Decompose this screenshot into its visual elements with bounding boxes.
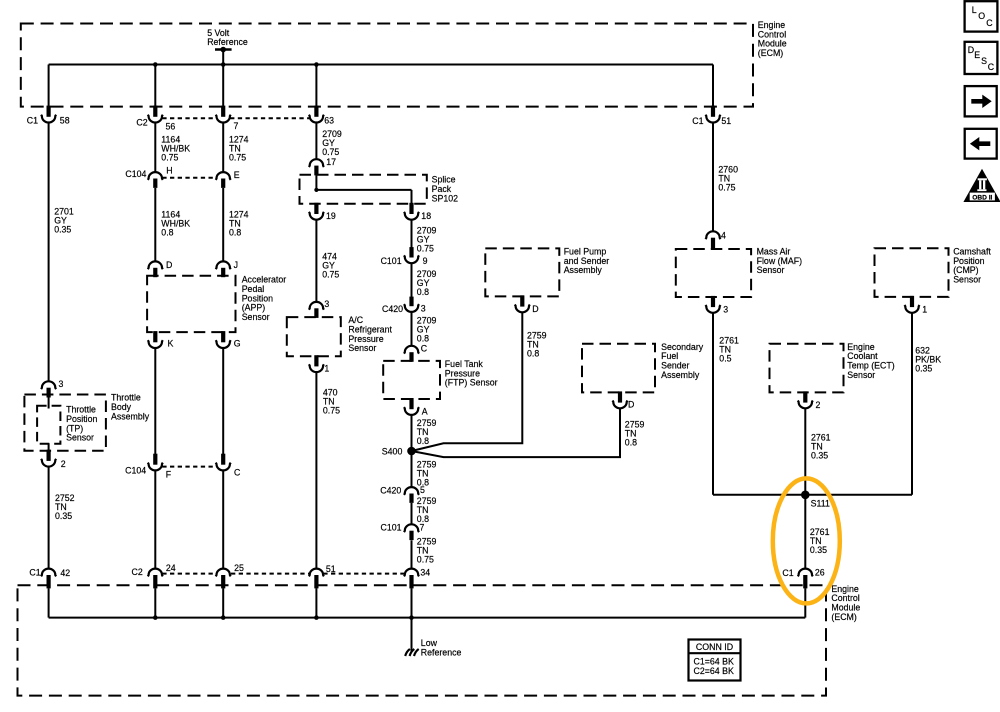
- svg-text:0.8: 0.8: [229, 228, 241, 238]
- svg-text:C1: C1: [27, 116, 38, 126]
- svg-text:0.75: 0.75: [417, 243, 434, 253]
- svg-text:CONN ID: CONN ID: [696, 642, 733, 652]
- svg-text:1: 1: [324, 363, 329, 373]
- svg-text:51: 51: [721, 116, 731, 126]
- svg-text:S: S: [981, 56, 987, 66]
- svg-text:24: 24: [166, 563, 176, 573]
- svg-text:63: 63: [324, 116, 334, 126]
- svg-text:C: C: [234, 468, 241, 478]
- svg-text:0.8: 0.8: [625, 437, 637, 447]
- svg-text:2: 2: [816, 400, 821, 410]
- svg-text:C2: C2: [132, 567, 143, 577]
- svg-text:D: D: [968, 45, 974, 55]
- svg-text:C101: C101: [380, 522, 401, 532]
- svg-text:OBD II: OBD II: [972, 195, 992, 202]
- svg-text:Sensor: Sensor: [348, 343, 376, 353]
- svg-text:Sensor: Sensor: [847, 370, 875, 380]
- svg-text:3: 3: [59, 379, 64, 389]
- svg-text:SP102: SP102: [432, 193, 459, 203]
- svg-text:0.75: 0.75: [322, 269, 339, 279]
- svg-text:1: 1: [922, 305, 927, 315]
- svg-text:Sensor: Sensor: [757, 265, 785, 275]
- svg-text:3: 3: [723, 305, 728, 315]
- svg-text:9: 9: [423, 256, 428, 266]
- svg-text:56: 56: [166, 121, 176, 131]
- svg-text:(ECM): (ECM): [831, 612, 856, 622]
- svg-text:Reference: Reference: [207, 37, 248, 47]
- svg-text:C1: C1: [692, 116, 703, 126]
- svg-text:7: 7: [234, 121, 239, 131]
- svg-text:C104: C104: [125, 466, 146, 476]
- svg-text:C420: C420: [380, 485, 401, 495]
- svg-text:D: D: [532, 304, 538, 314]
- svg-text:L: L: [972, 5, 977, 15]
- svg-text:3: 3: [421, 304, 426, 314]
- svg-text:C: C: [986, 18, 993, 28]
- svg-text:0.8: 0.8: [417, 333, 429, 343]
- svg-text:C1: C1: [29, 567, 40, 577]
- svg-text:17: 17: [326, 157, 336, 167]
- svg-text:C2=64 BK: C2=64 BK: [694, 666, 734, 676]
- svg-text:0.75: 0.75: [417, 555, 434, 565]
- svg-text:Assembly: Assembly: [111, 411, 150, 421]
- svg-text:42: 42: [60, 568, 70, 578]
- svg-text:0.35: 0.35: [55, 511, 72, 521]
- svg-text:18: 18: [421, 211, 431, 221]
- svg-text:0.5: 0.5: [719, 354, 731, 364]
- svg-text:C101: C101: [381, 256, 402, 266]
- svg-text:0.35: 0.35: [810, 545, 827, 555]
- svg-text:C: C: [988, 62, 995, 72]
- svg-text:Sensor: Sensor: [242, 312, 270, 322]
- svg-text:0.75: 0.75: [229, 153, 246, 163]
- svg-text:0.8: 0.8: [417, 287, 429, 297]
- svg-text:0.35: 0.35: [54, 225, 71, 235]
- svg-text:D: D: [628, 400, 634, 410]
- svg-text:A: A: [422, 407, 428, 417]
- svg-text:0.75: 0.75: [718, 182, 735, 192]
- svg-text:(FTP) Sensor: (FTP) Sensor: [445, 378, 498, 388]
- svg-text:7: 7: [420, 522, 425, 532]
- svg-text:C2: C2: [136, 117, 147, 127]
- svg-text:25: 25: [234, 563, 244, 573]
- svg-text:0.8: 0.8: [417, 436, 429, 446]
- svg-text:Reference: Reference: [421, 648, 462, 658]
- svg-text:0.8: 0.8: [527, 349, 539, 359]
- svg-text:K: K: [168, 338, 174, 348]
- svg-text:S111: S111: [811, 498, 830, 508]
- svg-text:34: 34: [420, 568, 430, 578]
- svg-text:0.75: 0.75: [161, 153, 178, 163]
- svg-text:19: 19: [326, 211, 336, 221]
- svg-text:Assembly: Assembly: [661, 370, 700, 380]
- svg-text:58: 58: [60, 116, 70, 126]
- svg-text:0.8: 0.8: [161, 228, 173, 238]
- svg-text:D: D: [166, 260, 172, 270]
- svg-text:0.35: 0.35: [811, 450, 828, 460]
- svg-text:F: F: [166, 470, 172, 480]
- svg-text:O: O: [978, 11, 985, 21]
- svg-text:H: H: [166, 165, 172, 175]
- svg-text:(ECM): (ECM): [758, 48, 783, 58]
- svg-text:2: 2: [61, 459, 66, 469]
- svg-text:J: J: [234, 260, 238, 270]
- svg-text:Sensor: Sensor: [953, 274, 981, 284]
- svg-text:C104: C104: [125, 169, 146, 179]
- svg-text:4: 4: [721, 231, 726, 241]
- svg-text:0.35: 0.35: [915, 363, 932, 373]
- svg-text:E: E: [974, 50, 980, 60]
- svg-text:0.75: 0.75: [323, 406, 340, 416]
- svg-text:3: 3: [324, 299, 329, 309]
- svg-text:Assembly: Assembly: [564, 265, 603, 275]
- svg-text:G: G: [234, 338, 241, 348]
- svg-text:Sensor: Sensor: [66, 433, 94, 443]
- svg-text:51: 51: [326, 564, 336, 574]
- svg-text:0.75: 0.75: [322, 147, 339, 157]
- svg-text:E: E: [234, 170, 240, 180]
- svg-text:S400: S400: [382, 447, 403, 457]
- svg-text:26: 26: [815, 568, 825, 578]
- svg-text:5: 5: [420, 485, 425, 495]
- svg-text:C1: C1: [782, 568, 793, 578]
- svg-text:C: C: [421, 344, 428, 354]
- svg-text:C420: C420: [382, 304, 403, 314]
